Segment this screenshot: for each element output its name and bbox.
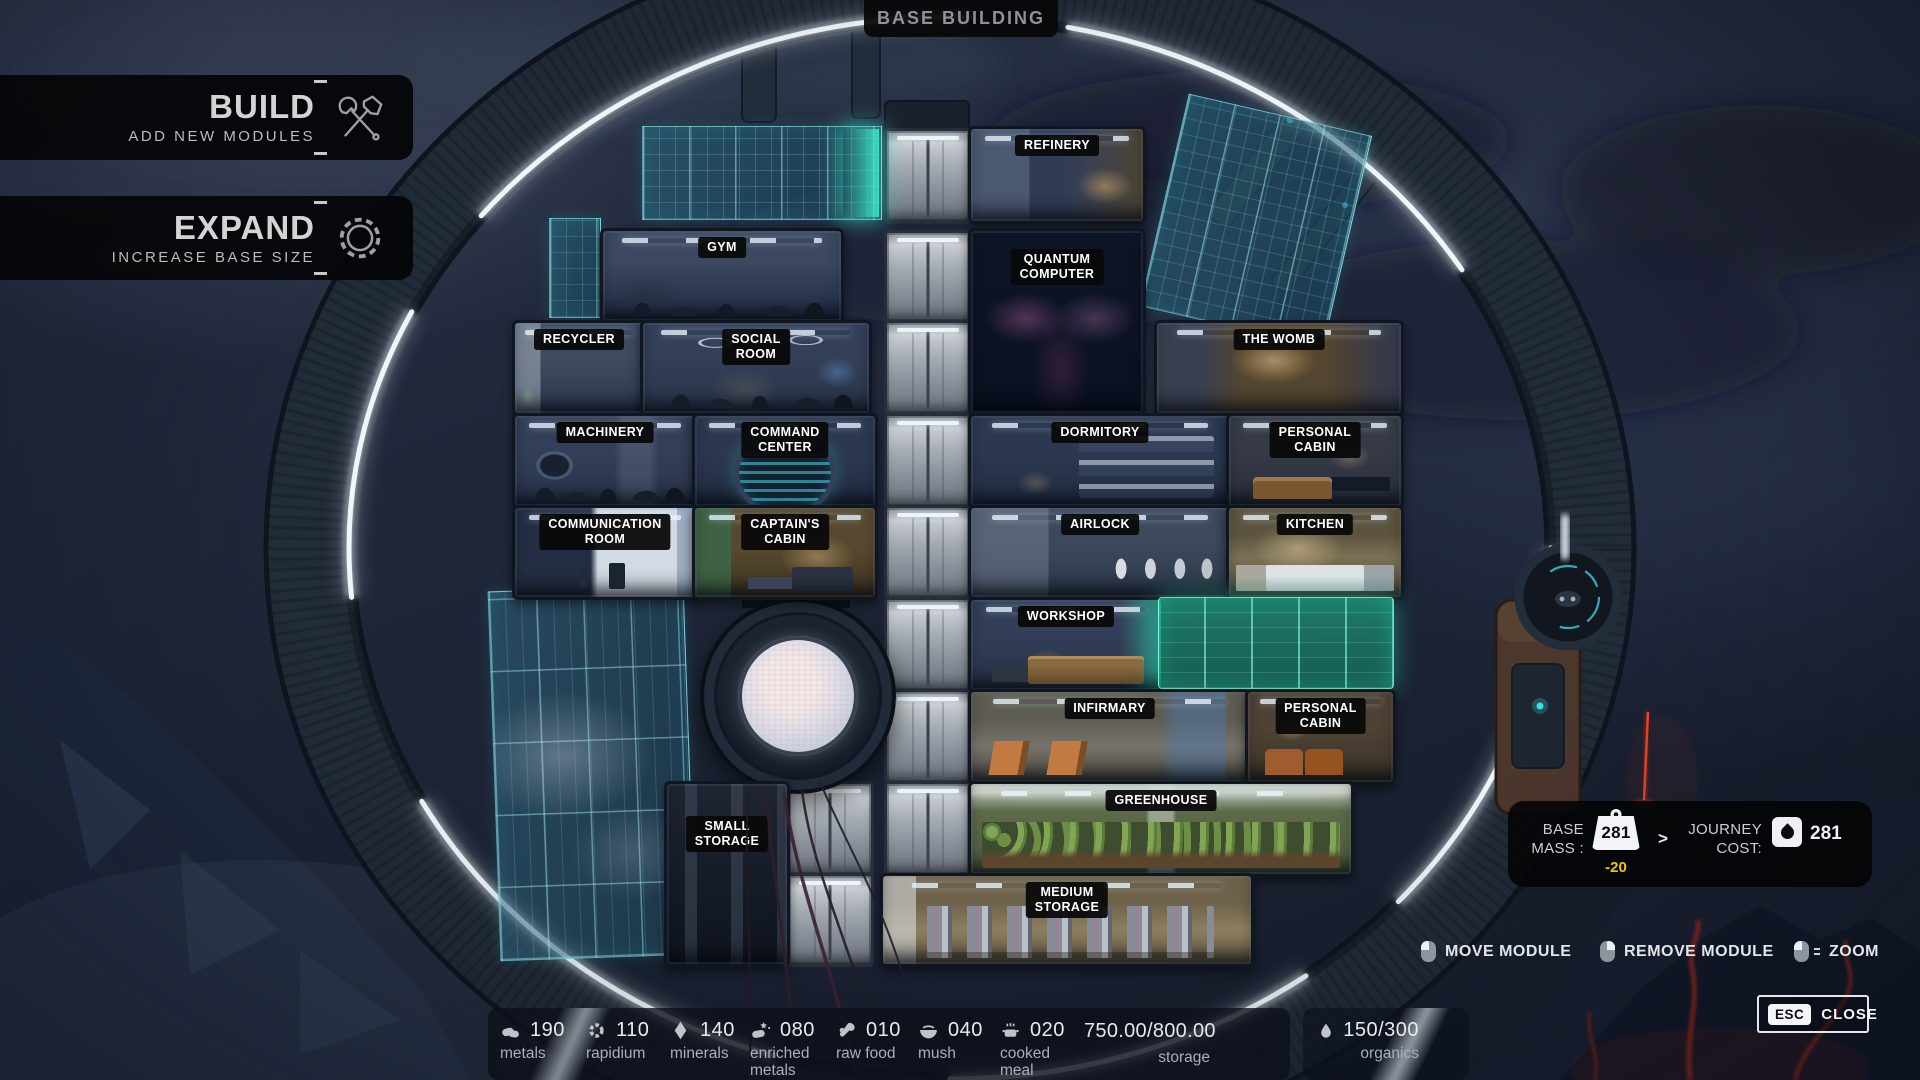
raw-food-icon — [836, 1020, 857, 1041]
resource-value: 080 — [780, 1019, 815, 1042]
elevator-shaft — [884, 320, 972, 416]
storage-value: 750.00/800.00 — [1084, 1020, 1210, 1043]
weight-icon: 281 — [1592, 809, 1640, 857]
resource-rapidium: 110 rapidium — [586, 1018, 649, 1062]
resource-label: minerals — [670, 1045, 735, 1062]
module-label: WORKSHOP — [1018, 606, 1114, 627]
organics-panel: 150/300 organics — [1303, 1008, 1469, 1080]
module-airlock[interactable]: AIRLOCK — [968, 505, 1232, 600]
module-personal-cabin-lower[interactable]: PERSONAL CABIN — [1245, 689, 1396, 785]
resource-value: 140 — [700, 1019, 735, 1042]
scroll-marks — [1814, 948, 1820, 955]
elevator-shaft — [884, 781, 972, 877]
mass-delta: -20 — [1592, 859, 1640, 876]
minerals-icon — [670, 1020, 691, 1041]
module-label: PERSONAL CABIN — [1275, 698, 1366, 734]
solar-panel-small[interactable] — [549, 218, 601, 318]
module-captains-cabin[interactable]: CAPTAIN'S CABIN — [692, 505, 878, 600]
module-personal-cabin-upper[interactable]: PERSONAL CABIN — [1226, 413, 1404, 509]
elevator-shaft — [884, 597, 972, 693]
resource-label: cooked meal — [1000, 1045, 1065, 1080]
solar-panel-array-top[interactable] — [642, 126, 882, 220]
rapidium-icon — [586, 1020, 607, 1041]
expand-sublabel: INCREASE BASE SIZE — [112, 249, 315, 266]
elevator-shaft — [786, 781, 874, 877]
module-social-room[interactable]: SOCIAL ROOM — [640, 320, 872, 416]
module-label: DORMITORY — [1051, 422, 1148, 443]
module-medium-storage[interactable]: MEDIUM STORAGE — [880, 873, 1254, 967]
journey-cost-value: 281 — [1810, 823, 1842, 845]
module-label: INFIRMARY — [1064, 698, 1155, 719]
mush-icon — [918, 1020, 939, 1041]
move-module-label: MOVE MODULE — [1445, 943, 1571, 961]
corner-tick — [314, 152, 327, 155]
mouse-left-click-icon — [1421, 941, 1436, 962]
module-quantum-computer[interactable]: QUANTUM COMPUTER — [968, 228, 1146, 416]
module-label: COMMAND CENTER — [741, 422, 828, 458]
corner-tick — [314, 201, 327, 204]
module-label: CAPTAIN'S CABIN — [741, 514, 829, 550]
resource-label: rapidium — [586, 1045, 649, 1062]
module-label: QUANTUM COMPUTER — [1011, 249, 1104, 285]
resource-enriched-metals: 080 enriched metals — [750, 1018, 815, 1080]
module-label: MEDIUM STORAGE — [1026, 882, 1108, 918]
module-label: THE WOMB — [1234, 329, 1325, 350]
module-kitchen[interactable]: KITCHEN — [1226, 505, 1404, 600]
base-building-screen: REFINERY GYM QUANTUM COMPUTER RECYCLER S… — [0, 0, 1920, 1080]
screen-title: BASE BUILDING — [864, 0, 1058, 37]
module-dormitory[interactable]: DORMITORY — [968, 413, 1232, 509]
module-label: REFINERY — [1015, 135, 1099, 156]
module-label: PERSONAL CABIN — [1270, 422, 1361, 458]
module-communication-room[interactable]: COMMUNICATION ROOM — [512, 505, 698, 600]
resource-value: 010 — [866, 1019, 901, 1042]
resource-minerals: 140 minerals — [670, 1018, 735, 1062]
remove-module-hint[interactable]: REMOVE MODULE — [1600, 941, 1774, 962]
expand-label: EXPAND — [174, 211, 315, 244]
module-label: GYM — [698, 237, 746, 258]
resource-metals: 190 metals — [500, 1018, 565, 1062]
module-label: KITCHEN — [1277, 514, 1353, 535]
cooked-meal-icon — [1000, 1020, 1021, 1041]
build-button[interactable]: BUILD ADD NEW MODULES — [0, 75, 413, 160]
remove-module-label: REMOVE MODULE — [1624, 943, 1774, 961]
elevator-shaft — [884, 505, 972, 600]
resource-label: mush — [918, 1045, 983, 1062]
base-mass-value: 281 — [1592, 816, 1640, 850]
module-greenhouse[interactable]: GREENHOUSE — [968, 781, 1354, 877]
close-label: CLOSE — [1821, 1006, 1878, 1023]
expand-button[interactable]: EXPAND INCREASE BASE SIZE — [0, 196, 413, 280]
module-machinery[interactable]: MACHINERY — [512, 413, 698, 509]
close-button[interactable]: ESC CLOSE — [1757, 995, 1869, 1033]
build-label: BUILD — [209, 90, 315, 123]
organics-label: organics — [1360, 1045, 1419, 1062]
hammer-wrench-icon — [331, 89, 389, 147]
module-label: COMMUNICATION ROOM — [539, 514, 670, 550]
esc-key-badge: ESC — [1768, 1004, 1811, 1025]
resource-value: 020 — [1030, 1019, 1065, 1042]
module-placement-ghost[interactable] — [1158, 597, 1394, 689]
resource-value: 190 — [530, 1019, 565, 1042]
elevator-shaft — [786, 873, 874, 967]
resource-storage: 750.00/800.00 storage — [1084, 1020, 1210, 1067]
resource-bar: 190 metals 110 rapidium 140 minerals 080… — [488, 1008, 1290, 1080]
corner-tick — [314, 272, 327, 275]
resource-value: 110 — [616, 1019, 649, 1042]
zoom-hint[interactable]: ZOOM — [1794, 941, 1879, 962]
expand-ring-icon — [331, 209, 389, 267]
move-module-hint[interactable]: MOVE MODULE — [1421, 941, 1571, 962]
module-command-center[interactable]: COMMAND CENTER — [692, 413, 878, 509]
hub-porthole — [700, 598, 896, 794]
fuel-drop-icon — [1772, 817, 1802, 847]
elevator-shaft — [884, 413, 972, 509]
elevator-shaft — [884, 230, 972, 324]
resource-label: raw food — [836, 1045, 901, 1062]
placement-glow — [1386, 599, 1478, 685]
journey-cost-label: JOURNEY COST: — [1684, 821, 1762, 859]
module-recycler[interactable]: RECYCLER — [512, 320, 646, 416]
resource-label: metals — [500, 1045, 565, 1062]
module-the-womb[interactable]: THE WOMB — [1154, 320, 1404, 416]
corner-tick — [314, 80, 327, 83]
mass-panel: BASE MASS : 281 -20 > JOURNEY COST: 281 — [1508, 801, 1872, 887]
module-label: GREENHOUSE — [1106, 790, 1217, 811]
module-gym[interactable]: GYM — [600, 228, 844, 324]
mouse-right-click-icon — [1600, 941, 1615, 962]
metals-icon — [500, 1020, 521, 1041]
resource-mush: 040 mush — [918, 1018, 983, 1062]
module-label: RECYCLER — [534, 329, 624, 350]
base-mass-label: BASE MASS : — [1518, 821, 1584, 859]
organics-value: 150/300 — [1343, 1019, 1419, 1042]
module-label: SOCIAL ROOM — [722, 329, 790, 365]
resource-value: 040 — [948, 1019, 983, 1042]
module-workshop[interactable]: WORKSHOP — [968, 597, 1164, 693]
zoom-label: ZOOM — [1829, 943, 1879, 961]
storage-label: storage — [1084, 1049, 1210, 1067]
resource-label: enriched metals — [750, 1045, 815, 1080]
elevator-shaft — [884, 689, 972, 785]
module-label: AIRLOCK — [1061, 514, 1139, 535]
chevron-right-icon: > — [1658, 829, 1668, 849]
module-small-storage[interactable]: SMALL STORAGE — [664, 781, 790, 967]
module-label: SMALL STORAGE — [686, 816, 768, 852]
module-label: MACHINERY — [557, 422, 654, 443]
resource-cooked-meal: 020 cooked meal — [1000, 1018, 1065, 1080]
resource-raw-food: 010 raw food — [836, 1018, 901, 1062]
mouse-scroll-icon — [1794, 941, 1809, 962]
enriched-metals-icon — [750, 1020, 771, 1041]
module-refinery[interactable]: REFINERY — [968, 126, 1146, 224]
module-infirmary[interactable]: INFIRMARY — [968, 689, 1251, 785]
build-sublabel: ADD NEW MODULES — [128, 128, 315, 145]
elevator-shaft — [884, 128, 972, 224]
organics-drop-icon — [1317, 1022, 1335, 1040]
